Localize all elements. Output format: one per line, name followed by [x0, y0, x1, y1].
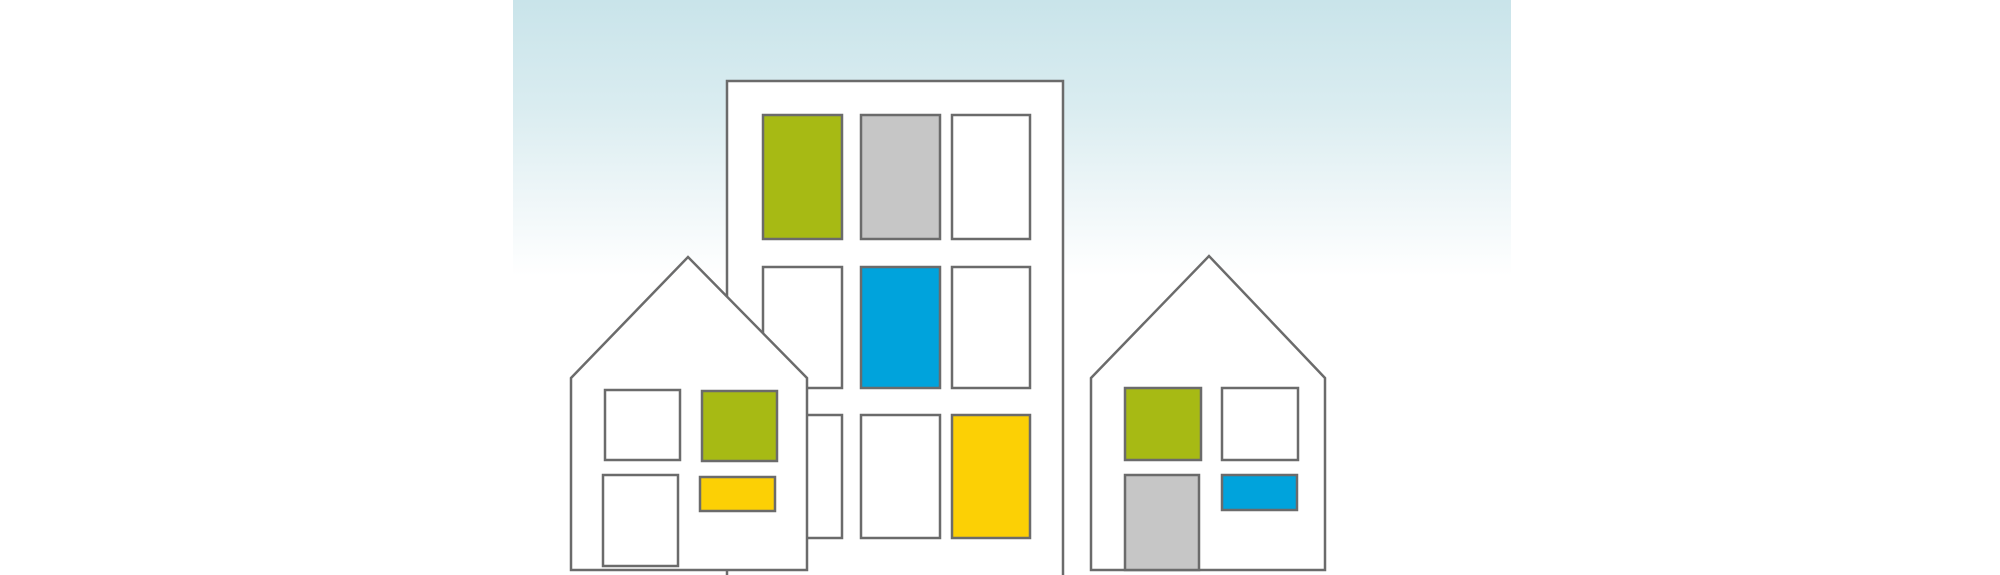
tower-window-r2c3-white: [952, 267, 1030, 388]
tower-window-r1c3-white: [952, 115, 1030, 239]
right-house-window-bottom-right-blue: [1222, 475, 1297, 510]
tower-window-r1c2-gray: [861, 115, 940, 239]
tower-window-r3c2-white: [861, 415, 940, 538]
left-house-window-bottom-right-yellow: [700, 477, 775, 511]
right-house-window-top-left-green: [1125, 388, 1201, 460]
left-house-window-top-left-white: [605, 390, 680, 460]
tower-window-r3c3-yellow: [952, 415, 1030, 538]
right-house: [1091, 256, 1325, 570]
illustration-canvas: [0, 0, 2000, 575]
right-house-door-gray: [1125, 475, 1199, 570]
left-house-window-top-right-green: [702, 391, 777, 461]
left-house-window-bottom-left-white: [603, 475, 678, 566]
buildings-illustration: [0, 0, 2000, 575]
right-house-window-top-right-white: [1222, 388, 1298, 460]
tower-window-r2c2-blue: [861, 267, 940, 388]
tower-window-r1c1-green: [763, 115, 842, 239]
